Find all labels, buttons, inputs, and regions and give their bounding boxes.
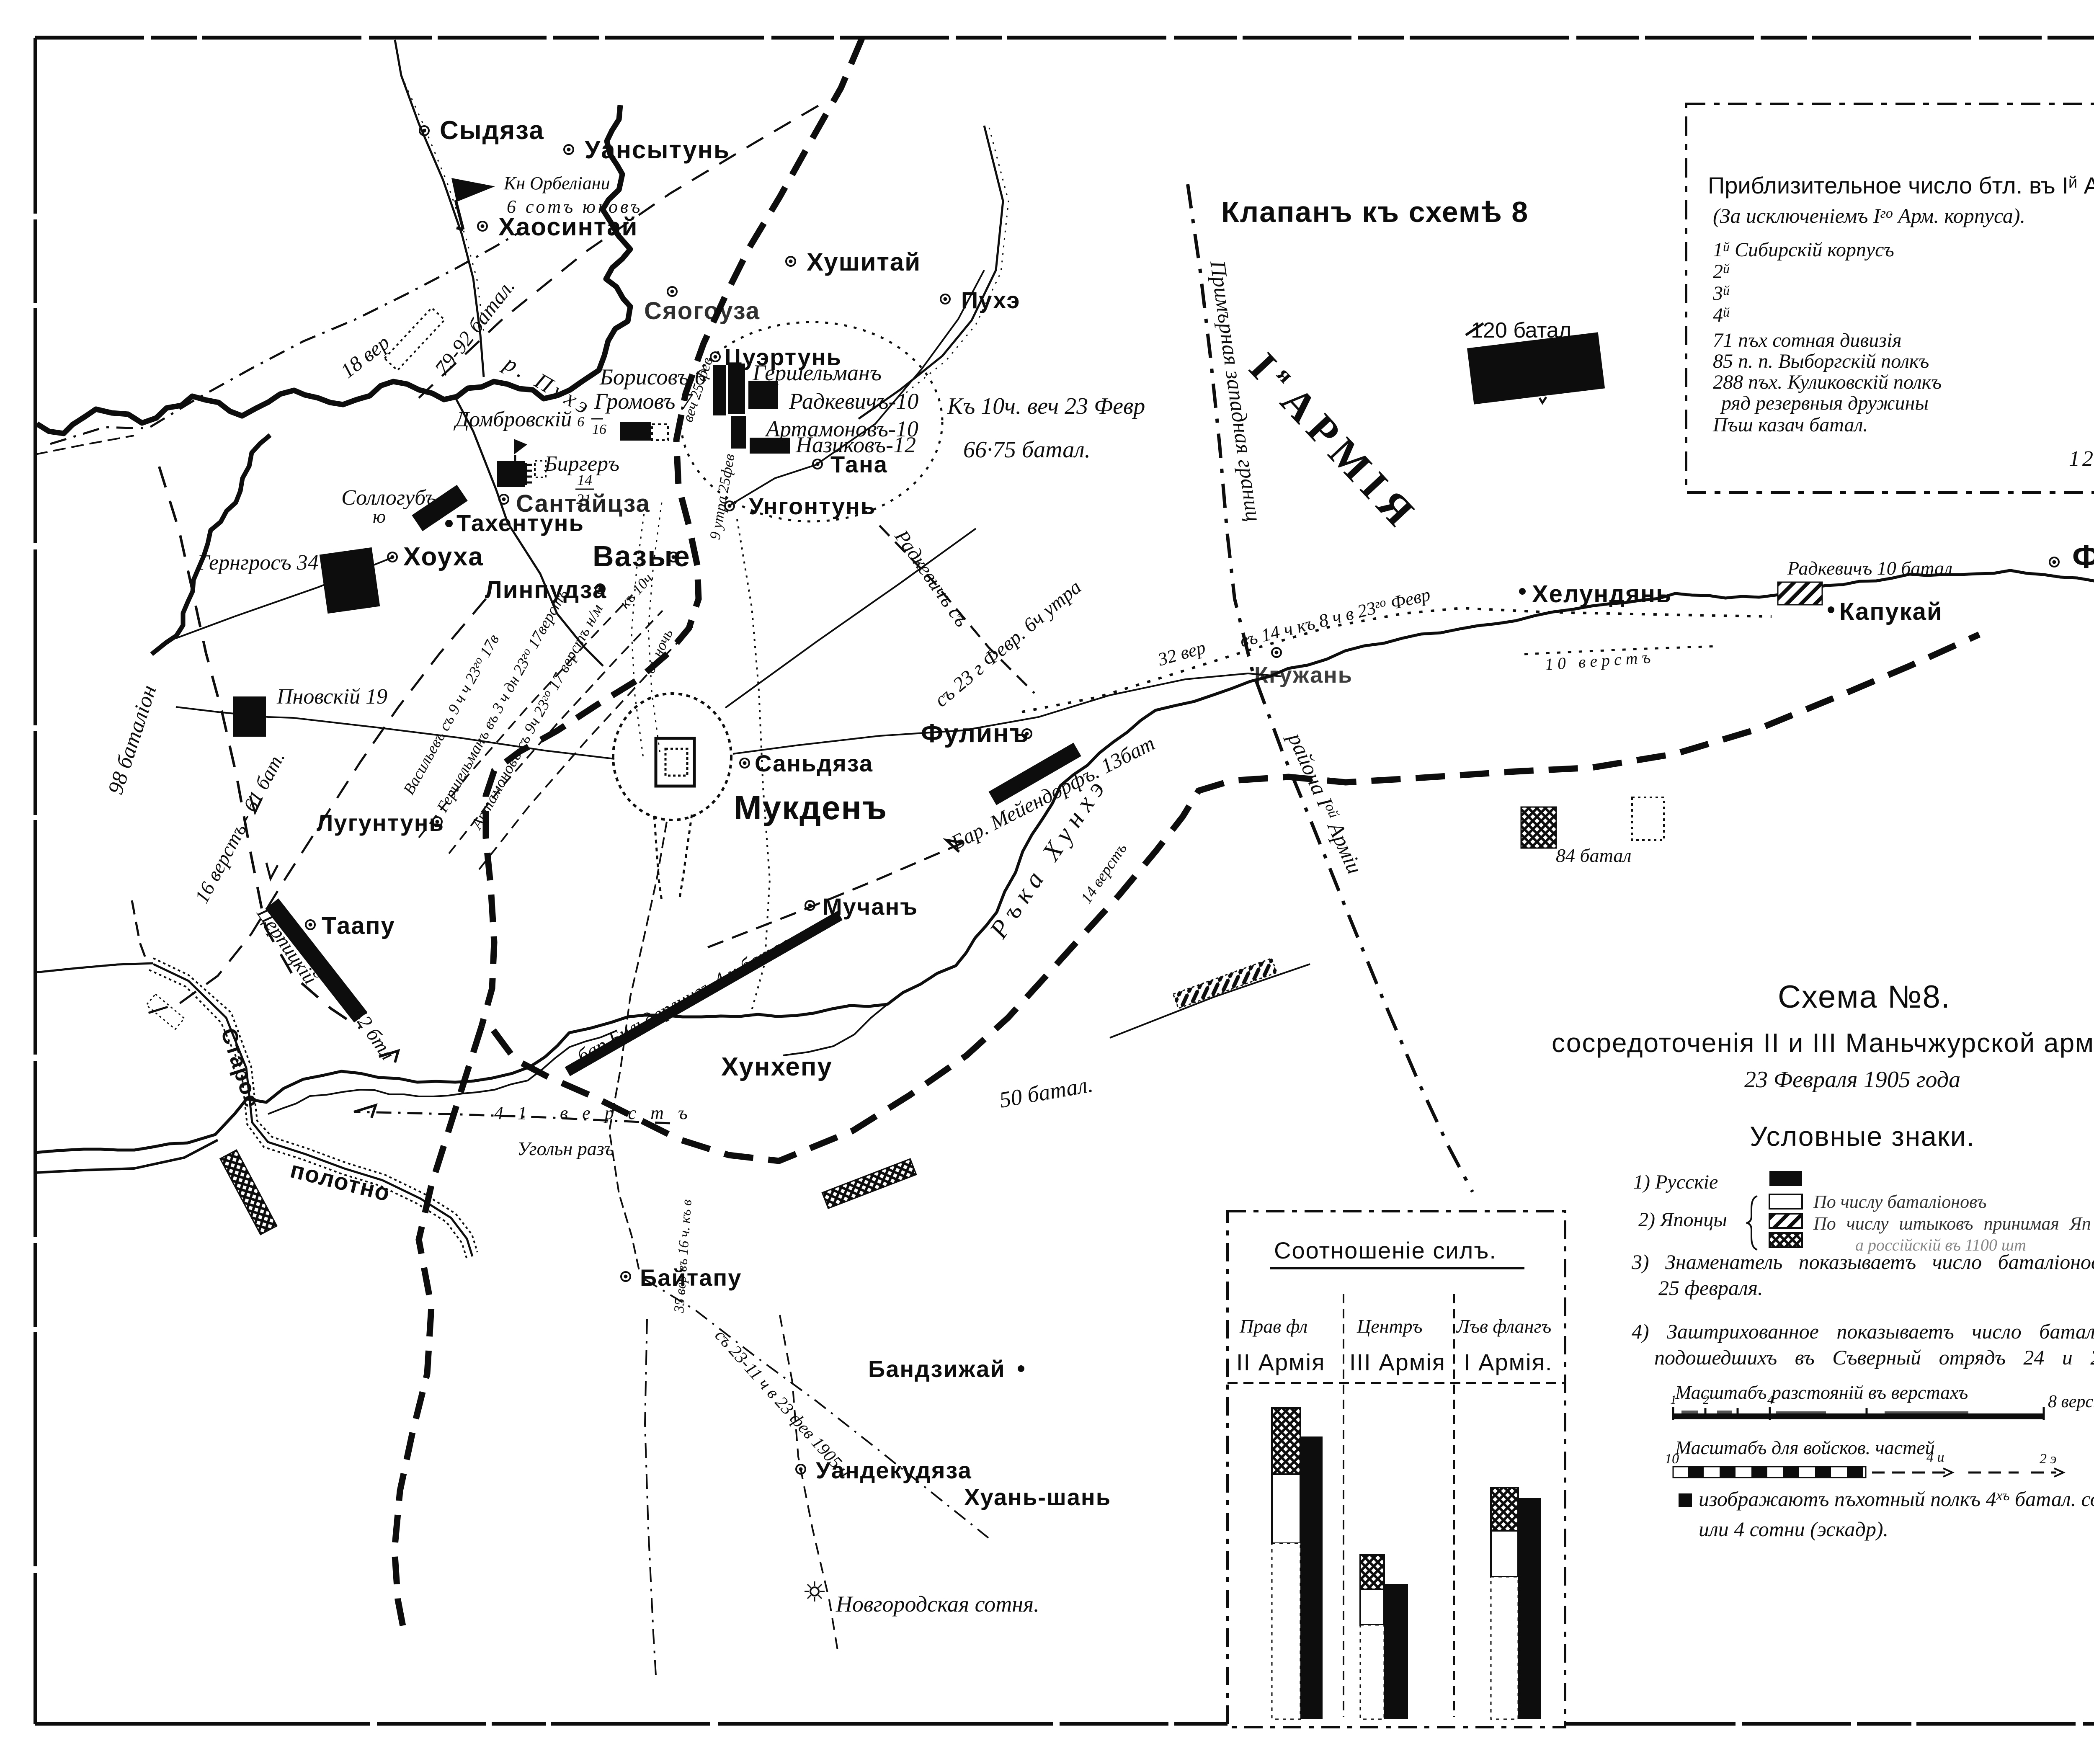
svg-text:изображаютъ пъхотный полкъ: изображаютъ пъхотный полкъ 4хъ батал. со… [1699, 1487, 2094, 1511]
svg-text:288 пъх. Куликовскiй полкъ: 288 пъх. Куликовскiй полкъ [1713, 371, 1942, 393]
svg-text:Хоуха: Хоуха [403, 542, 484, 571]
svg-text:Радкевичъ 10 батал: Радкевичъ 10 батал [1787, 557, 1952, 579]
svg-text:Вазые: Вазые [593, 540, 691, 573]
svg-text:Фулинъ: Фулинъ [921, 719, 1029, 748]
svg-text:Уансытунь: Уансытунь [585, 136, 730, 164]
svg-text:Тахентунь: Тахентунь [456, 510, 584, 536]
svg-text:Къ 10ч. веч 23 Февр: Къ 10ч. веч 23 Февр [947, 393, 1145, 419]
svg-text:2 э: 2 э [2040, 1451, 2057, 1467]
svg-text:Соотношенiе силъ.: Соотношенiе силъ. [1274, 1237, 1497, 1264]
svg-text:4: 4 [1767, 1393, 1774, 1407]
svg-text:сосредоточенiя II и III Маньч: сосредоточенiя II и III Маньчжурской арм… [1552, 1028, 2094, 1058]
svg-text:Пухэ: Пухэ [961, 287, 1020, 313]
svg-text:Капукай: Капукай [1839, 598, 1943, 625]
svg-text:II Армiя: II Армiя [1236, 1349, 1325, 1375]
svg-text:4) Заштрихованное показывае: 4) Заштрихованное показываетъ число бата… [1632, 1320, 2094, 1343]
svg-text:1: 1 [1670, 1393, 1676, 1407]
svg-text:Клапанъ къ схемѣ 8: Клапанъ къ схемѣ 8 [1221, 196, 1529, 228]
svg-text:Домбровскiй 6: Домбровскiй 6 [453, 407, 584, 431]
svg-text:84 батал: 84 батал [1556, 845, 1631, 866]
svg-text:Хунхепу: Хунхепу [721, 1052, 833, 1081]
svg-text:Громовъ 7: Громовъ 7 [594, 389, 693, 414]
svg-text:Хуань-шань: Хуань-шань [964, 1484, 1111, 1510]
svg-text:120 бтл: 120 бтл [2069, 447, 2094, 471]
svg-text:41 верстъ: 41 верстъ [494, 1103, 702, 1123]
svg-text:Мукденъ: Мукденъ [734, 789, 887, 826]
svg-text:Таапу: Таапу [322, 912, 395, 939]
svg-text:Байтапу: Байтапу [640, 1264, 742, 1291]
svg-text:Фушунъ: Фушунъ [2072, 538, 2094, 575]
svg-text:ряд резервныя дружины: ряд резервныя дружины [1720, 392, 1929, 414]
svg-text:Схема №8.: Схема №8. [1778, 979, 1951, 1015]
svg-text:Бандзижай: Бандзижай [868, 1356, 1006, 1382]
svg-text:8 верстъ: 8 верстъ [2048, 1392, 2094, 1411]
svg-text:66·75 батал.: 66·75 батал. [963, 437, 1091, 463]
svg-text:Кгужань: Кгужань [1254, 663, 1353, 688]
svg-text:1й Сибирскiй корпусъ: 1й Сибирскiй корпусъ [1713, 239, 1894, 261]
svg-text:Унгонтунь: Унгонтунь [749, 493, 876, 519]
svg-text:Хелундянь: Хелундянь [1532, 580, 1672, 608]
svg-text:подошедшихъ въ Съверный отр: подошедшихъ въ Съверный отрядъ 24 и 25 ф… [1654, 1346, 2094, 1369]
svg-text:10: 10 [1665, 1451, 1679, 1467]
svg-text:или 4 сотни (эскадр).: или 4 сотни (эскадр). [1699, 1517, 1888, 1541]
svg-text:Сяогоуза: Сяогоуза [644, 297, 760, 325]
svg-text:По числу штыковъ принимая Яп Б: По числу штыковъ принимая Яп Бтл. въ 900… [1813, 1213, 2094, 1234]
svg-text:По числу баталiоновъ: По числу баталiоновъ [1813, 1191, 1986, 1212]
svg-text:3) Знаменатель показываетъ ч: 3) Знаменатель показываетъ число баталiо… [1631, 1250, 2094, 1274]
svg-text:Хаосинтай: Хаосинтай [498, 213, 638, 241]
svg-text:6 сотъ юковъ: 6 сотъ юковъ [507, 196, 642, 217]
svg-text:71 пъх сотная дивизiя: 71 пъх сотная дивизiя [1713, 329, 1902, 351]
svg-text:ю: ю [373, 506, 386, 527]
svg-text:85 п. п. Выборгскiй полкъ: 85 п. п. Выборгскiй полкъ [1713, 350, 1929, 372]
svg-text:23 Февраля 1905 года: 23 Февраля 1905 года [1744, 1067, 1960, 1093]
svg-text:Центръ: Центръ [1356, 1315, 1423, 1337]
svg-text:Мучанъ: Мучанъ [823, 893, 918, 920]
svg-text:(За исключенiемъ Iго Арм. корп: (За исключенiемъ Iго Арм. корпуса). [1713, 204, 2025, 227]
svg-text:Соллогубъ: Соллогубъ [341, 486, 436, 510]
svg-text:Назиковъ-12: Назиковъ-12 [795, 432, 916, 457]
svg-text:III Армiя: III Армiя [1349, 1349, 1446, 1375]
svg-text:120 батал.: 120 батал. [1471, 318, 1578, 343]
svg-text:Лъв флангъ: Лъв флангъ [1456, 1315, 1551, 1337]
svg-text:Масштабъ для войсков. частей: Масштабъ для войсков. частей [1675, 1437, 1935, 1458]
svg-text:14: 14 [577, 472, 592, 488]
svg-text:Пновскiй 19: Пновскiй 19 [276, 685, 387, 709]
svg-text:21: 21 [576, 491, 591, 508]
svg-text:Условные знаки.: Условные знаки. [1750, 1121, 1975, 1152]
svg-text:Пъш казач батал.: Пъш казач батал. [1712, 414, 1868, 436]
svg-text:Угольн разъ: Угольн разъ [517, 1138, 614, 1159]
svg-text:Гершельманъ: Гершельманъ [752, 360, 882, 385]
svg-text:Приблизительное число бтл. въ: Приблизительное число бтл. въ Iй Арм. [1708, 172, 2094, 199]
svg-text:2: 2 [1703, 1393, 1709, 1407]
svg-text:Кн Орбелiани: Кн Орбелiани [503, 173, 610, 193]
svg-text:I Армiя.: I Армiя. [1464, 1349, 1552, 1375]
svg-text:Сыдяза: Сыдяза [440, 116, 544, 145]
svg-text:16: 16 [592, 422, 606, 437]
svg-text:Линпудза: Линпудза [485, 576, 607, 603]
svg-text:4 и: 4 и [1926, 1449, 1944, 1465]
svg-text:Новгородская сотня.: Новгородская сотня. [836, 1591, 1039, 1617]
svg-text:Масштабъ разстоянiй въ верс: Масштабъ разстоянiй въ верстахъ [1675, 1382, 1968, 1403]
svg-text:Гернгросъ 34: Гернгросъ 34 [197, 551, 319, 575]
svg-text:Прав фл: Прав фл [1239, 1315, 1307, 1337]
svg-text:Лугунтунь: Лугунтунь [317, 810, 444, 836]
svg-text:Радкевичъ-10: Радкевичъ-10 [789, 389, 918, 414]
svg-text:25 февраля.: 25 февраля. [1658, 1276, 1763, 1300]
svg-text:Хушитай: Хушитай [807, 248, 921, 276]
svg-text:2) Японцы: 2) Японцы [1638, 1209, 1727, 1231]
svg-text:Саньдяза: Саньдяза [755, 750, 873, 776]
svg-text:1) Русскiе: 1) Русскiе [1633, 1171, 1718, 1193]
